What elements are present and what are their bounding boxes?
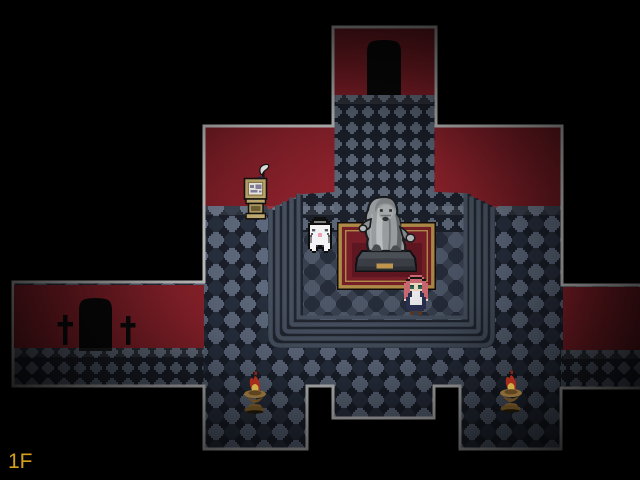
svg-text:1F: 1F	[8, 450, 33, 473]
